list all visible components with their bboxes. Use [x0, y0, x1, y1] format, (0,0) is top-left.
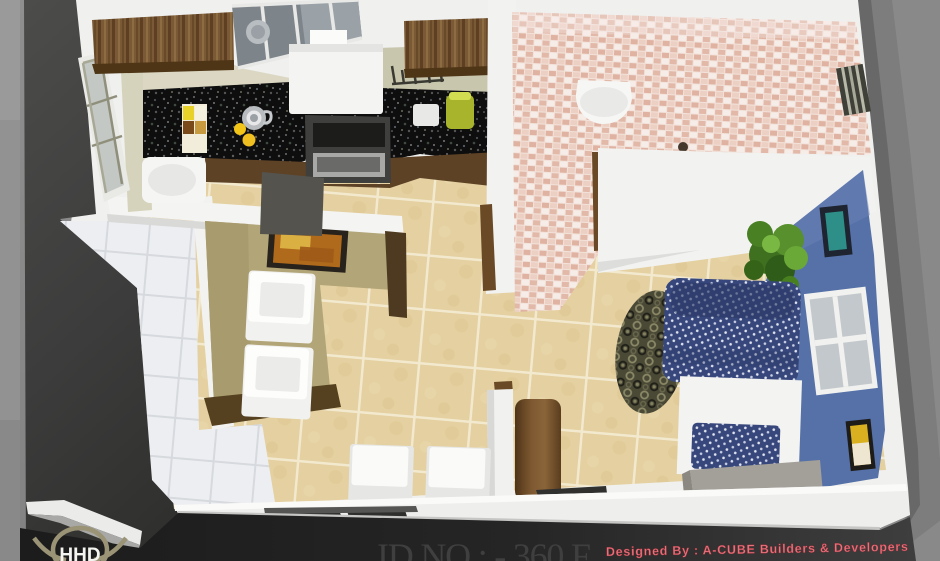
svg-text:HHD: HHD: [59, 545, 100, 561]
svg-text:ID NO : - 360 F: ID NO : - 360 F: [377, 536, 592, 561]
